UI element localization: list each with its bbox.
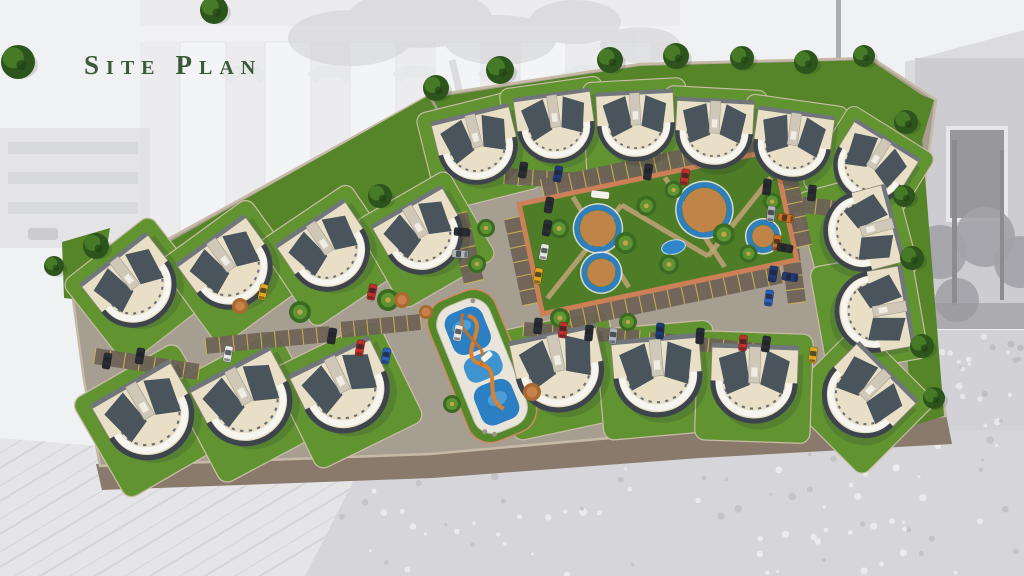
orange-bush	[232, 298, 248, 314]
left-building	[0, 128, 150, 248]
parked-car	[762, 179, 772, 196]
parked-car	[584, 325, 594, 342]
parked-car	[558, 322, 568, 339]
orange-bush	[523, 383, 541, 401]
palm-tree	[289, 301, 311, 323]
parked-car	[655, 323, 664, 340]
palm-tree	[468, 255, 486, 273]
palm-tree	[443, 395, 461, 413]
parked-car	[608, 328, 618, 345]
parked-car	[695, 328, 704, 345]
parked-car	[454, 227, 471, 236]
orange-bush	[394, 292, 410, 308]
parked-car	[738, 335, 747, 352]
parked-car	[766, 206, 776, 223]
parked-car	[452, 249, 469, 258]
parked-car	[533, 318, 543, 335]
title-letter: S	[84, 50, 106, 80]
palm-tree	[477, 219, 495, 237]
slide: SITEPLAN	[0, 0, 1024, 576]
orange-bush	[419, 305, 433, 319]
page-title: SITEPLAN	[84, 50, 262, 81]
parked-car	[807, 185, 817, 202]
palm-tree	[619, 313, 637, 331]
site-plan-rendering	[0, 0, 1024, 576]
